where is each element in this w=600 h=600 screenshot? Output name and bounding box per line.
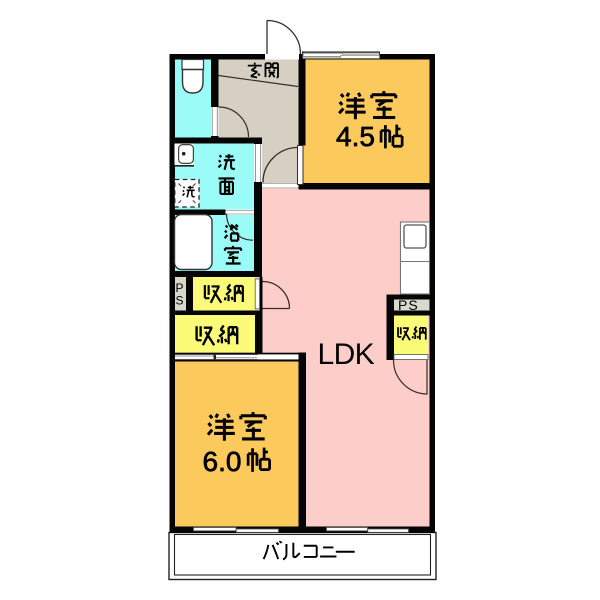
svg-text:LDK: LDK (318, 338, 375, 371)
svg-text:PS: PS (398, 297, 419, 313)
svg-text:4.5: 4.5 (336, 121, 375, 152)
svg-text:6.0: 6.0 (203, 446, 242, 477)
svg-text:S: S (175, 294, 183, 308)
